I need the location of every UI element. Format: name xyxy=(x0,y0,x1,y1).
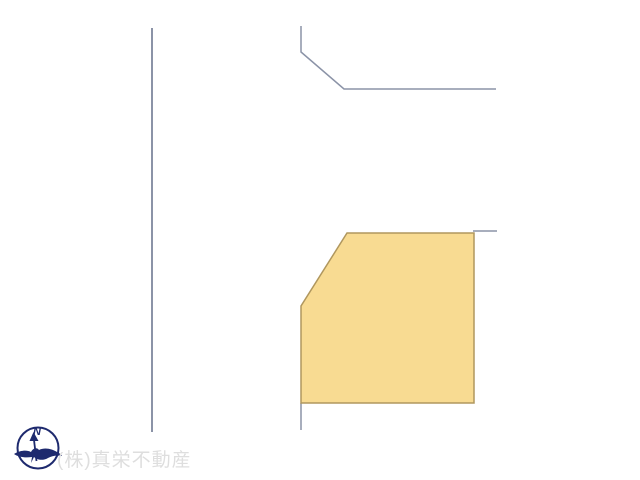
upper-road-boundary xyxy=(301,26,496,89)
lot-parcel xyxy=(301,233,474,403)
compass-logo: N xyxy=(14,426,62,469)
company-watermark: (株)真栄不動産 xyxy=(57,449,192,471)
site-plan-drawing: N (株)真栄不動産 xyxy=(0,0,640,480)
compass-north-label: N xyxy=(33,426,42,438)
site-plan-canvas: N (株)真栄不動産 xyxy=(0,0,640,480)
